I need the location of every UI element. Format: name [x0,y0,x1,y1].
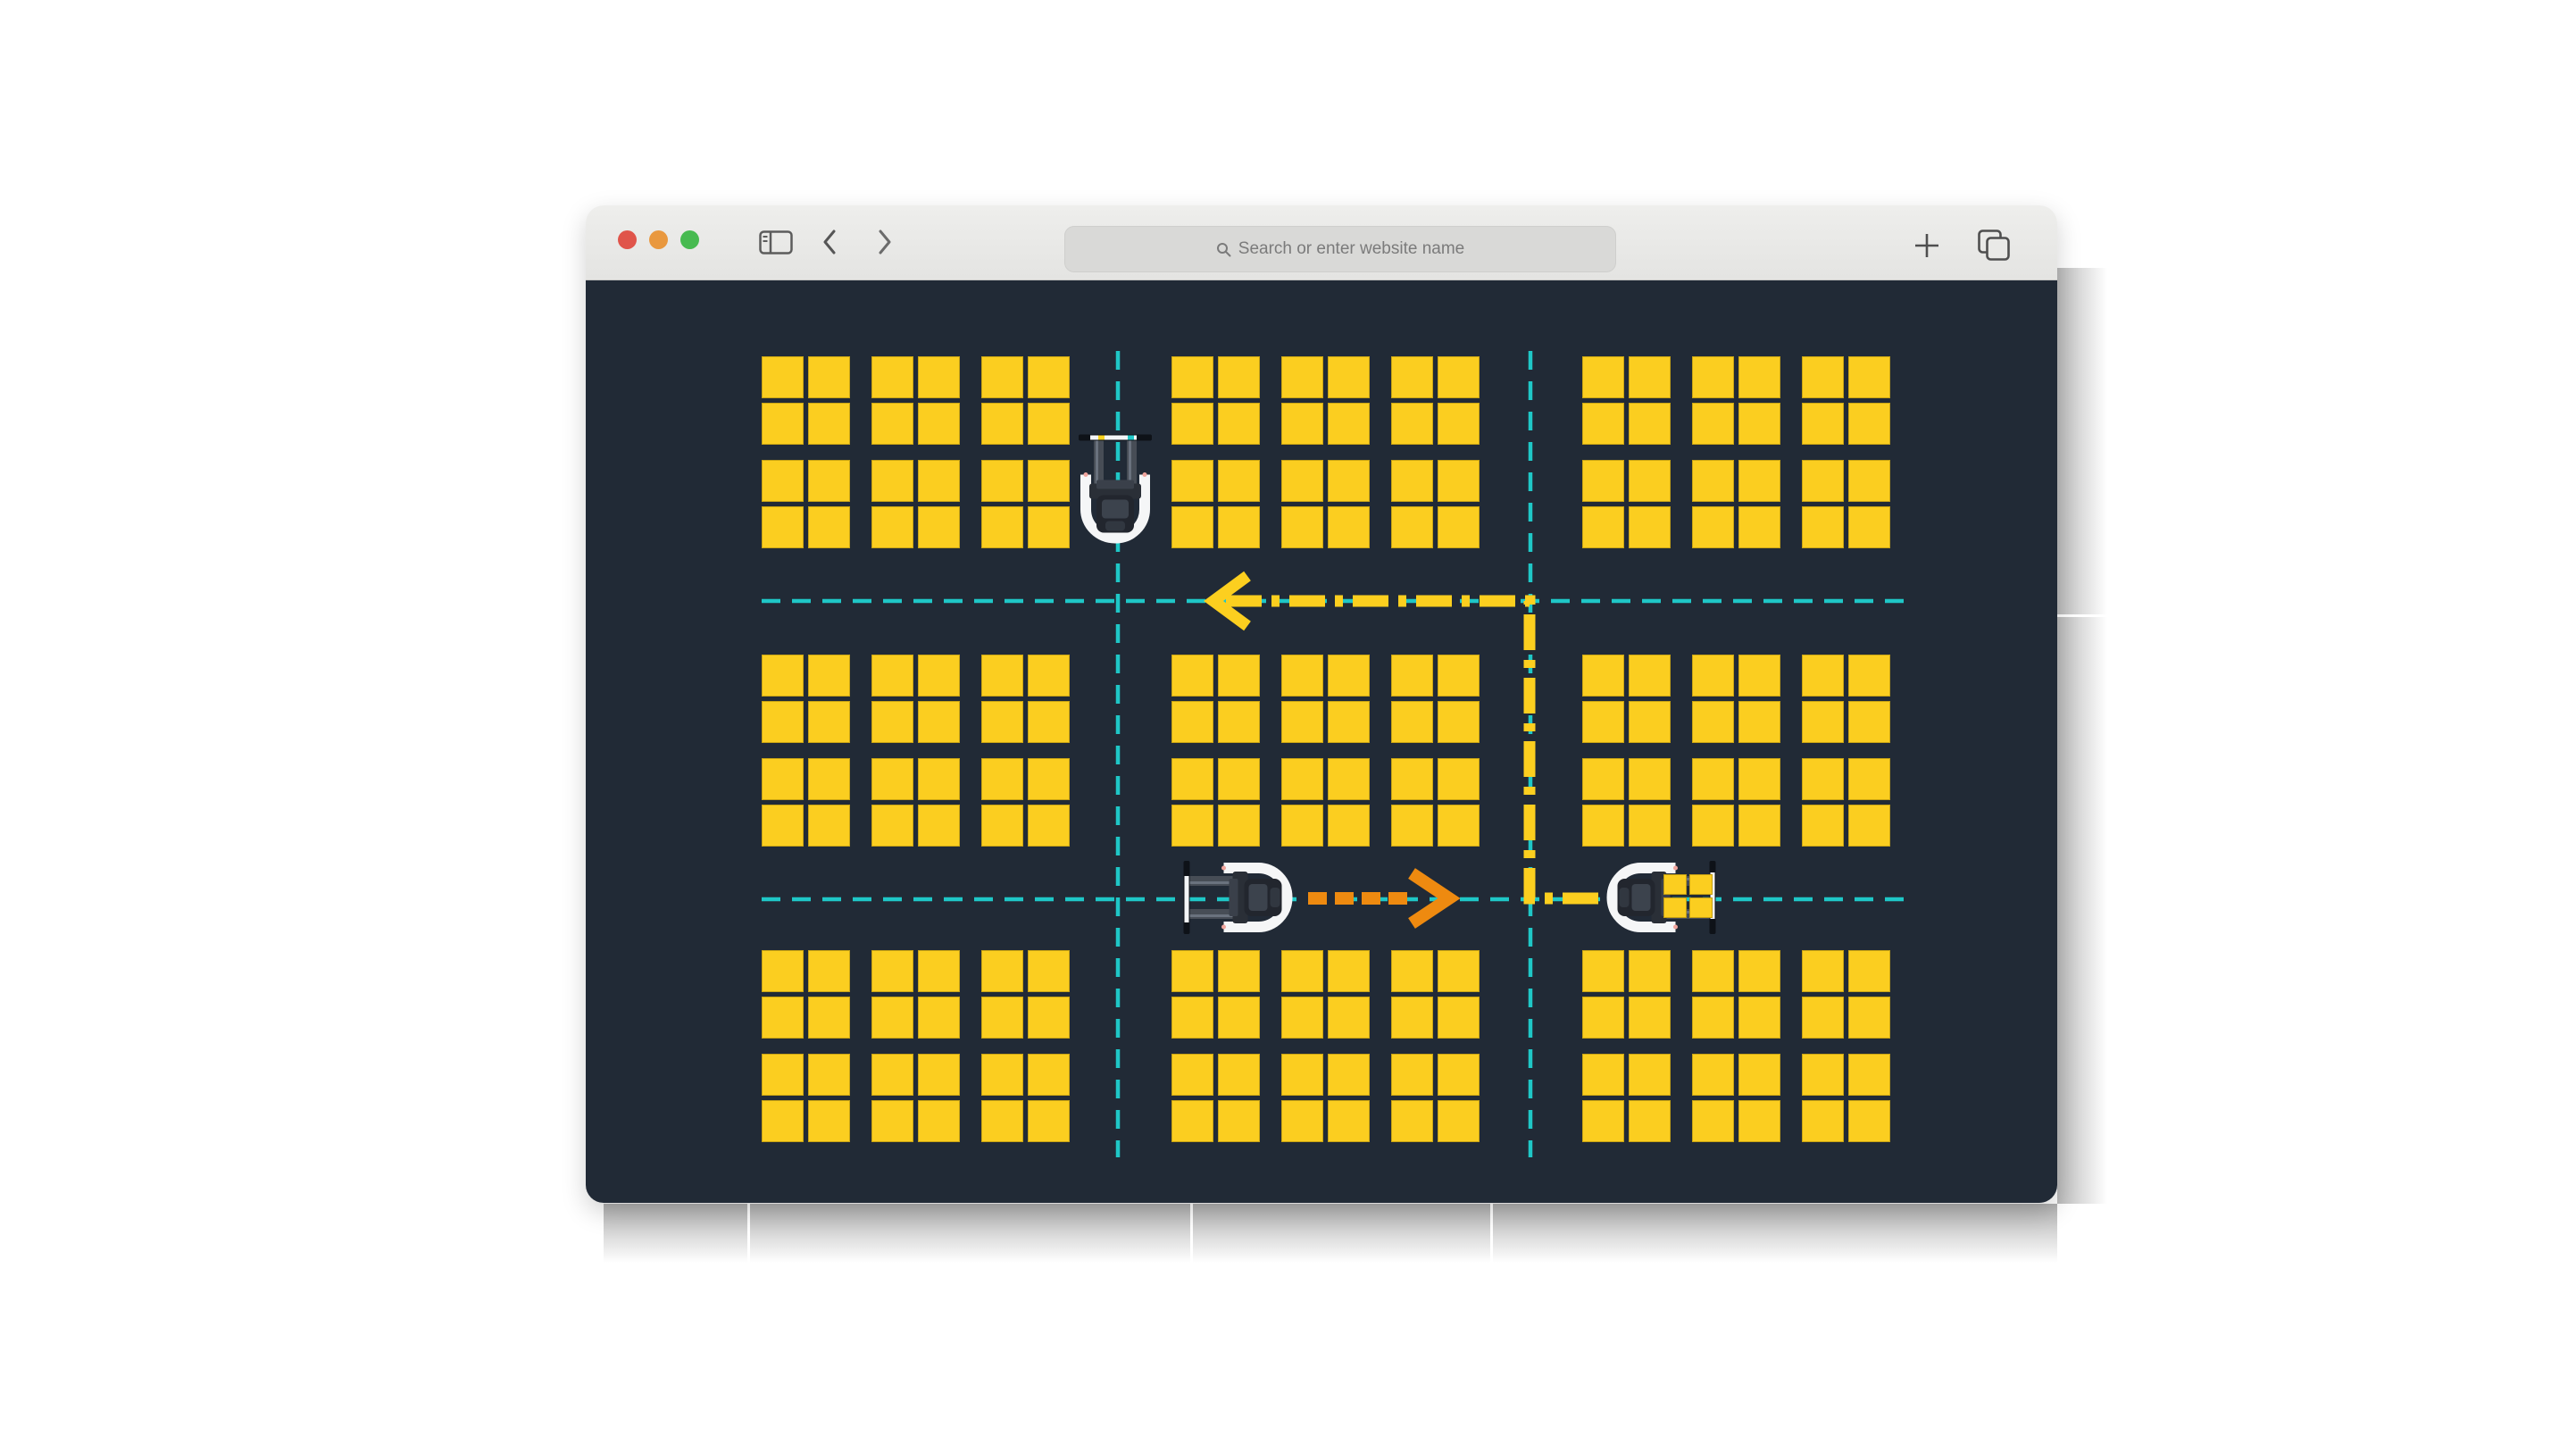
background-grid-line [2057,614,2107,617]
route-yellow-dashdot [1225,601,1598,898]
sidebar-toggle-icon[interactable] [759,230,793,255]
magnifier-icon [1216,242,1231,257]
carried-pallet [1663,874,1713,919]
address-bar[interactable]: Search or enter website name [1064,226,1616,272]
forklift-north[interactable] [1079,434,1152,544]
browser-window: Search or enter website name [586,205,2057,1203]
browser-titlebar[interactable]: Search or enter website name [586,205,2057,280]
warehouse-canvas [586,280,2057,1203]
background-grid-line [1190,1204,1193,1263]
zoom-button[interactable] [680,230,699,249]
tab-overview-icon[interactable] [1977,229,2013,263]
window-shadow-bottom [604,1204,2057,1263]
close-button[interactable] [618,230,637,249]
minimize-button[interactable] [649,230,668,249]
forklift-west[interactable] [1183,861,1293,934]
address-placeholder: Search or enter website name [1238,239,1464,259]
back-icon[interactable] [823,229,836,255]
background-grid-line [747,1204,750,1263]
window-shadow-right [2057,268,2107,1204]
route-layer [586,280,2057,1203]
forward-icon[interactable] [879,229,891,255]
new-tab-icon[interactable] [1913,231,1941,260]
background-grid-line [1490,1204,1493,1263]
